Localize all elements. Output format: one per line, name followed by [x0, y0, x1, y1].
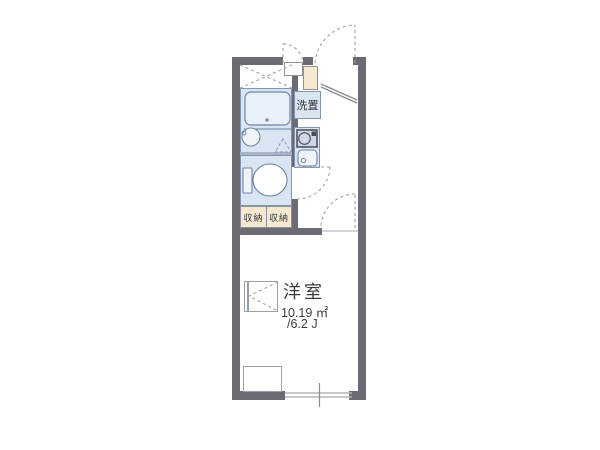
loft-cross-lines — [240, 65, 292, 88]
entrance-door-arc — [315, 25, 355, 63]
window — [285, 383, 352, 407]
bath-door-icon — [275, 139, 291, 152]
room-door-arc — [321, 194, 355, 228]
room-name-label: 洋室 — [283, 278, 325, 304]
meter-box-door-arc — [283, 44, 303, 63]
bathtub-icon — [244, 92, 291, 129]
toilet-icon — [243, 164, 287, 196]
toilet-door-arc — [297, 167, 330, 199]
entry-step-line — [321, 84, 357, 103]
stove-icon — [297, 130, 317, 147]
folding-table-chevrons — [249, 282, 278, 311]
door-swing-arcs — [240, 25, 355, 311]
washbasin-icon — [242, 128, 260, 146]
plan-symbols — [0, 0, 600, 450]
kitchen-sink-icon — [298, 150, 317, 166]
floor-plan: 収納 収納 洗置 — [0, 0, 600, 450]
room-area-tatami: /6.2 J — [287, 317, 318, 331]
